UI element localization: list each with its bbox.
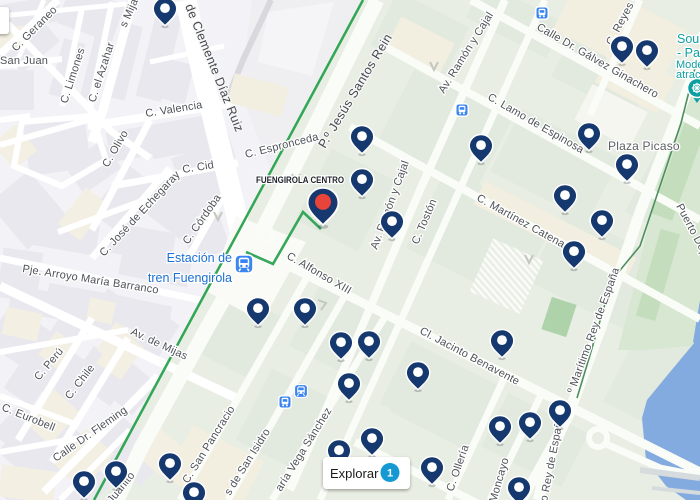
svg-text:FUENGIROLA CENTRO: FUENGIROLA CENTRO [256,175,344,186]
svg-text:- Par: - Par [677,46,700,60]
svg-text:Explorar: Explorar [330,466,379,481]
svg-text:Soul: Soul [677,32,700,46]
svg-text:Estación de: Estación de [167,251,232,265]
svg-text:tren Fuengirola: tren Fuengirola [148,271,232,285]
svg-text:1: 1 [387,468,393,480]
svg-text:San Juan: San Juan [0,55,48,67]
svg-text:Plaza Picaso: Plaza Picaso [608,139,680,153]
